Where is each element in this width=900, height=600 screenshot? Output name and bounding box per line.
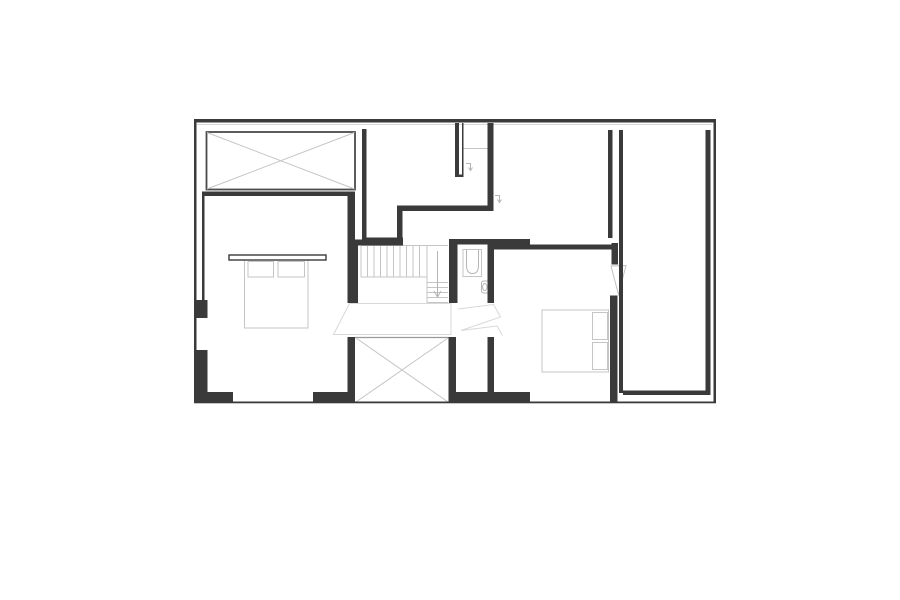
floor-plan — [0, 0, 900, 600]
bed-left-body — [245, 260, 309, 328]
bedroom-right-top-wall — [490, 245, 613, 250]
duct-wall-thin — [462, 123, 464, 175]
closet-east-wall — [488, 337, 495, 397]
shaft-west-wall — [608, 130, 613, 238]
bed-left-pillow — [248, 262, 274, 278]
stair-top-wall — [352, 240, 403, 246]
outer-wall-left — [194, 119, 197, 403]
toilet-bowl — [483, 283, 487, 290]
step-horizontal-wall — [397, 206, 493, 212]
duct-bottom-cap — [455, 175, 464, 178]
bedroom-left-west-partition — [202, 192, 205, 319]
bed-right-pillow — [593, 343, 608, 370]
bed-right-body — [542, 310, 609, 372]
rightroom-east-wall — [706, 130, 711, 395]
stair-west-wall — [352, 245, 358, 303]
rightroom-west-wall — [619, 130, 623, 393]
mid-divider-wall — [488, 123, 494, 211]
outer-wall-top — [194, 119, 716, 123]
fan-sightline-right — [458, 305, 503, 336]
west-corner-wall-horizontal — [197, 392, 234, 403]
floor-plan-page — [0, 0, 900, 600]
door-leaf-right-bedroom — [611, 266, 626, 295]
outer-wall-right — [714, 119, 717, 403]
room-top-mid-west-wall — [362, 129, 367, 242]
bottom-wall-bath — [449, 392, 530, 403]
bed-left-headboard-shelf — [229, 255, 326, 260]
duct-wall-thick — [455, 123, 459, 177]
bathroom-top-wall — [449, 239, 530, 245]
bed-left-pillow — [278, 262, 305, 278]
shower-basin — [467, 250, 479, 274]
bathroom-west-wall — [449, 245, 458, 304]
fan-sightline-left — [334, 304, 452, 335]
bedroom-right-east-wall — [610, 296, 618, 404]
bottom-wall-mid-left — [313, 392, 355, 403]
bathroom-east-wall — [488, 245, 495, 304]
bedroom-right-east-wall-stub — [612, 243, 619, 265]
west-wall-stub — [197, 300, 208, 318]
bedroom-left-top-wall — [202, 192, 351, 197]
bed-right-pillow — [593, 313, 608, 340]
rightroom-bottom-wall — [623, 391, 711, 396]
